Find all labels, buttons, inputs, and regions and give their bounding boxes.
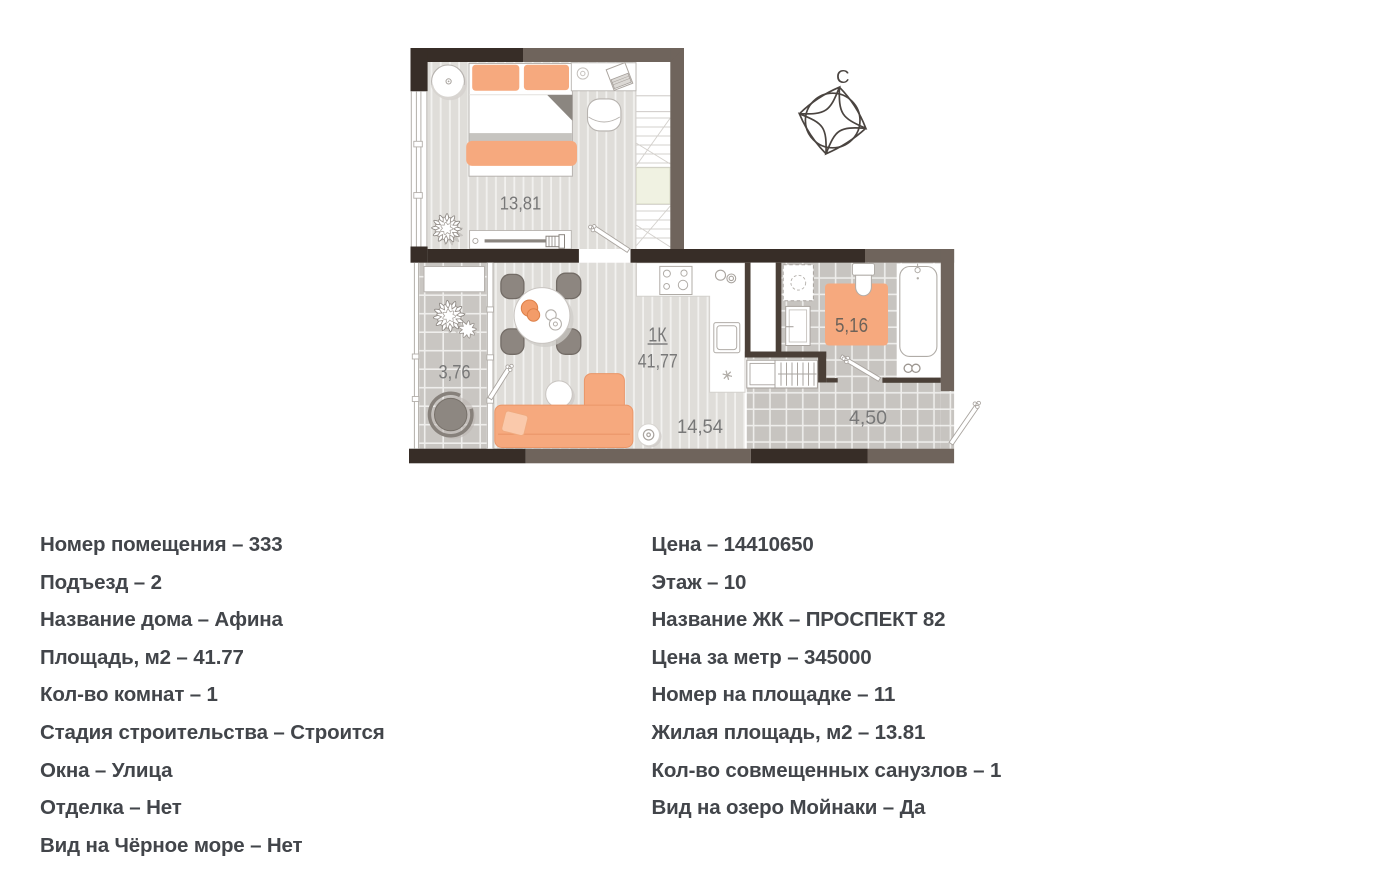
svg-text:С: С <box>836 66 849 87</box>
svg-text:5,16: 5,16 <box>835 315 868 337</box>
svg-text:13,81: 13,81 <box>500 194 542 214</box>
svg-text:3,76: 3,76 <box>439 363 471 384</box>
svg-text:41,77: 41,77 <box>638 350 678 372</box>
svg-text:1К: 1К <box>648 325 667 347</box>
svg-text:14,54: 14,54 <box>677 416 723 438</box>
svg-text:4,50: 4,50 <box>849 407 887 429</box>
